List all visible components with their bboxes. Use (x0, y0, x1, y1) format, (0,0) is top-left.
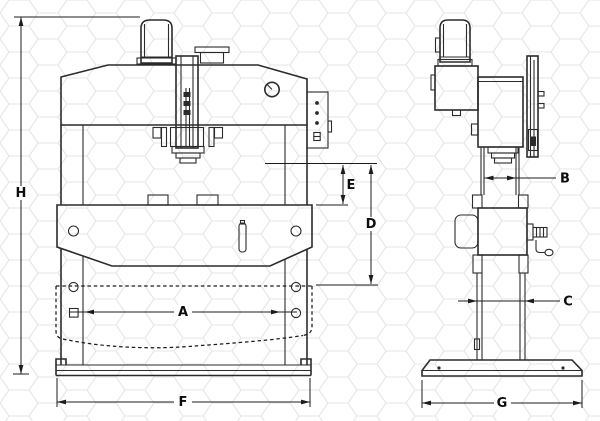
base-bolt-hole (561, 366, 564, 369)
dim-label-d: D (366, 217, 377, 232)
dim-label-g: G (497, 396, 508, 411)
panel-button (315, 111, 319, 115)
panel-button (315, 101, 319, 105)
hydraulic-press-drawing: H A F E D B (0, 0, 600, 421)
dim-label-c: C (563, 295, 573, 310)
dim-label-a: A (178, 305, 188, 320)
dim-label-b: B (560, 172, 570, 187)
base-bolt-hole (437, 366, 440, 369)
technical-drawing-page: H A F E D B (0, 0, 600, 421)
dim-label-e: E (347, 178, 356, 193)
honeycomb-watermark (0, 0, 600, 421)
dim-label-h: H (16, 186, 27, 201)
dim-label-f: F (179, 395, 188, 410)
panel-button (315, 121, 319, 125)
